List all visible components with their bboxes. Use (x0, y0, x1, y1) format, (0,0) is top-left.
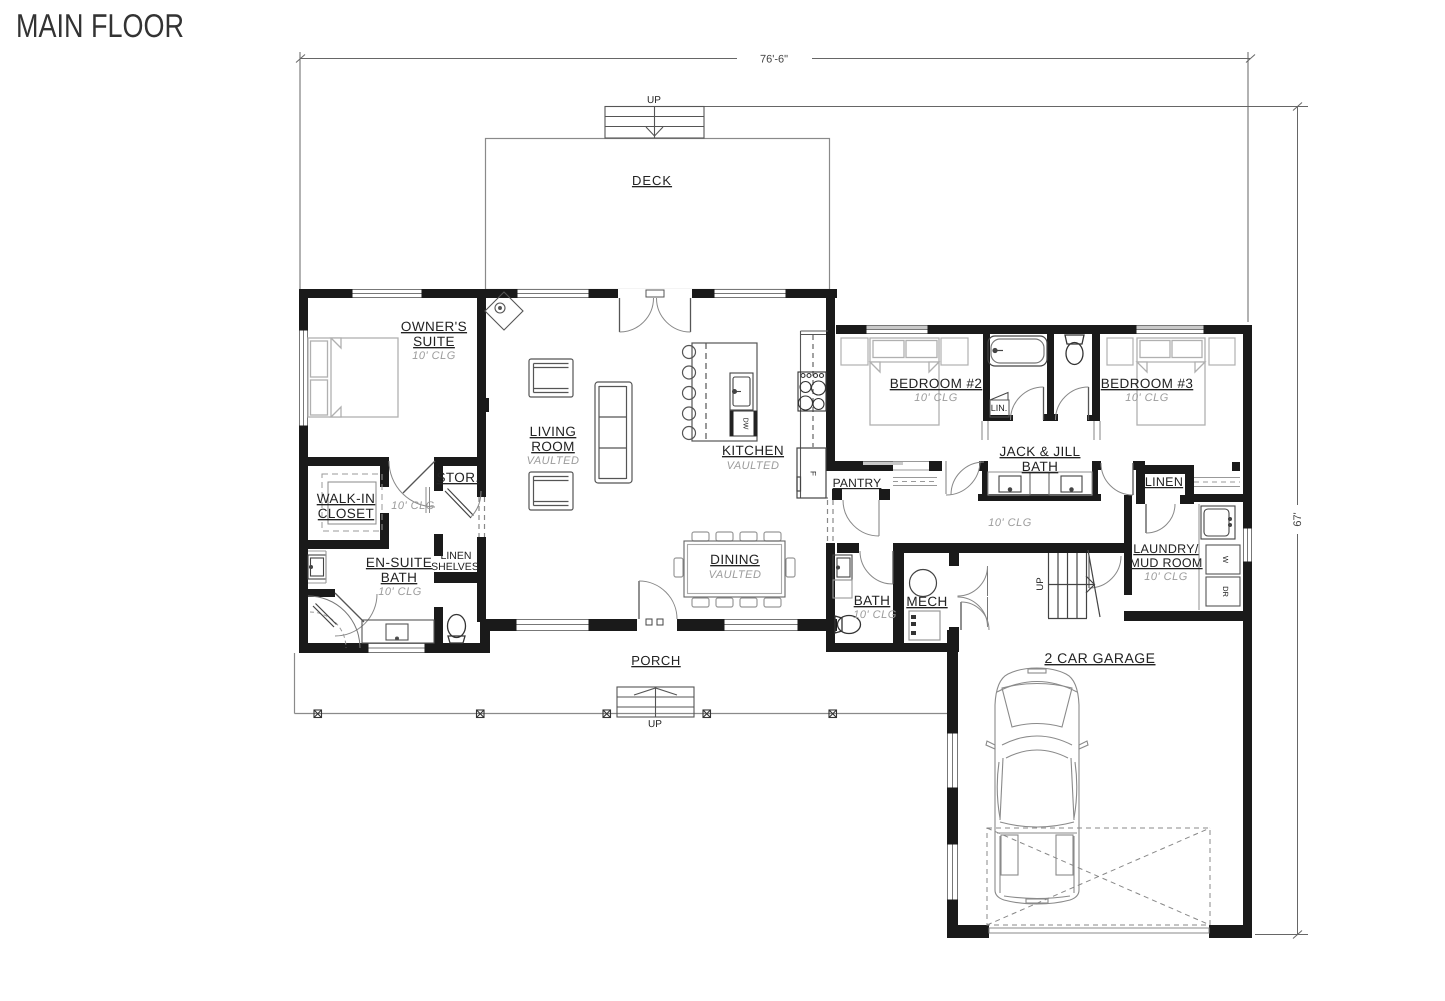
svg-text:10' CLG: 10' CLG (853, 609, 897, 621)
svg-text:BATH: BATH (854, 593, 891, 608)
svg-text:DW: DW (742, 418, 749, 430)
svg-text:MECH: MECH (906, 594, 947, 609)
svg-text:LIN.: LIN. (991, 403, 1008, 413)
svg-text:LINEN: LINEN (1145, 475, 1183, 489)
svg-text:DECK: DECK (632, 173, 672, 188)
svg-text:OWNER'S: OWNER'S (401, 319, 467, 334)
svg-text:10' CLG: 10' CLG (1125, 392, 1169, 404)
svg-text:SUITE: SUITE (413, 334, 455, 349)
svg-text:LIVING: LIVING (530, 424, 577, 439)
svg-text:STOR.: STOR. (436, 470, 479, 485)
svg-text:SHELVES: SHELVES (431, 561, 479, 573)
svg-text:JACK & JILL: JACK & JILL (1000, 444, 1081, 459)
svg-text:UP: UP (647, 95, 661, 106)
svg-text:10' CLG: 10' CLG (412, 350, 456, 362)
svg-text:VAULTED: VAULTED (527, 455, 580, 467)
svg-text:LAUNDRY/: LAUNDRY/ (1133, 542, 1199, 556)
svg-text:10' CLG: 10' CLG (391, 500, 435, 512)
svg-text:F: F (809, 471, 818, 476)
svg-text:10' CLG: 10' CLG (1144, 571, 1188, 583)
svg-text:10' CLG: 10' CLG (988, 517, 1032, 529)
svg-text:BEDROOM #3: BEDROOM #3 (1101, 376, 1194, 391)
svg-text:W: W (1221, 556, 1230, 564)
svg-text:DR: DR (1221, 586, 1230, 597)
svg-text:PANTRY: PANTRY (833, 476, 882, 490)
svg-text:10' CLG: 10' CLG (914, 392, 958, 404)
svg-text:UP: UP (648, 719, 662, 730)
svg-text:ROOM: ROOM (531, 439, 575, 454)
svg-text:PORCH: PORCH (631, 653, 680, 668)
svg-text:2 CAR GARAGE: 2 CAR GARAGE (1044, 650, 1155, 666)
svg-text:BATH: BATH (1022, 459, 1059, 474)
svg-text:BATH: BATH (381, 570, 418, 585)
svg-text:CLOSET: CLOSET (318, 506, 374, 521)
svg-text:MAIN FLOOR: MAIN FLOOR (16, 7, 184, 44)
svg-text:MUD ROOM: MUD ROOM (1129, 556, 1202, 570)
svg-text:VAULTED: VAULTED (727, 460, 780, 472)
svg-text:76'-6": 76'-6" (760, 54, 788, 66)
svg-text:10' CLG: 10' CLG (378, 586, 422, 598)
svg-text:EN-SUITE: EN-SUITE (366, 555, 432, 570)
svg-text:VAULTED: VAULTED (709, 569, 762, 581)
svg-text:BEDROOM #2: BEDROOM #2 (890, 376, 983, 391)
svg-text:WALK-IN: WALK-IN (317, 491, 376, 506)
svg-text:67': 67' (1292, 512, 1304, 526)
svg-text:DINING: DINING (710, 552, 760, 567)
svg-text:KITCHEN: KITCHEN (722, 443, 784, 458)
svg-text:UP: UP (1035, 577, 1046, 590)
